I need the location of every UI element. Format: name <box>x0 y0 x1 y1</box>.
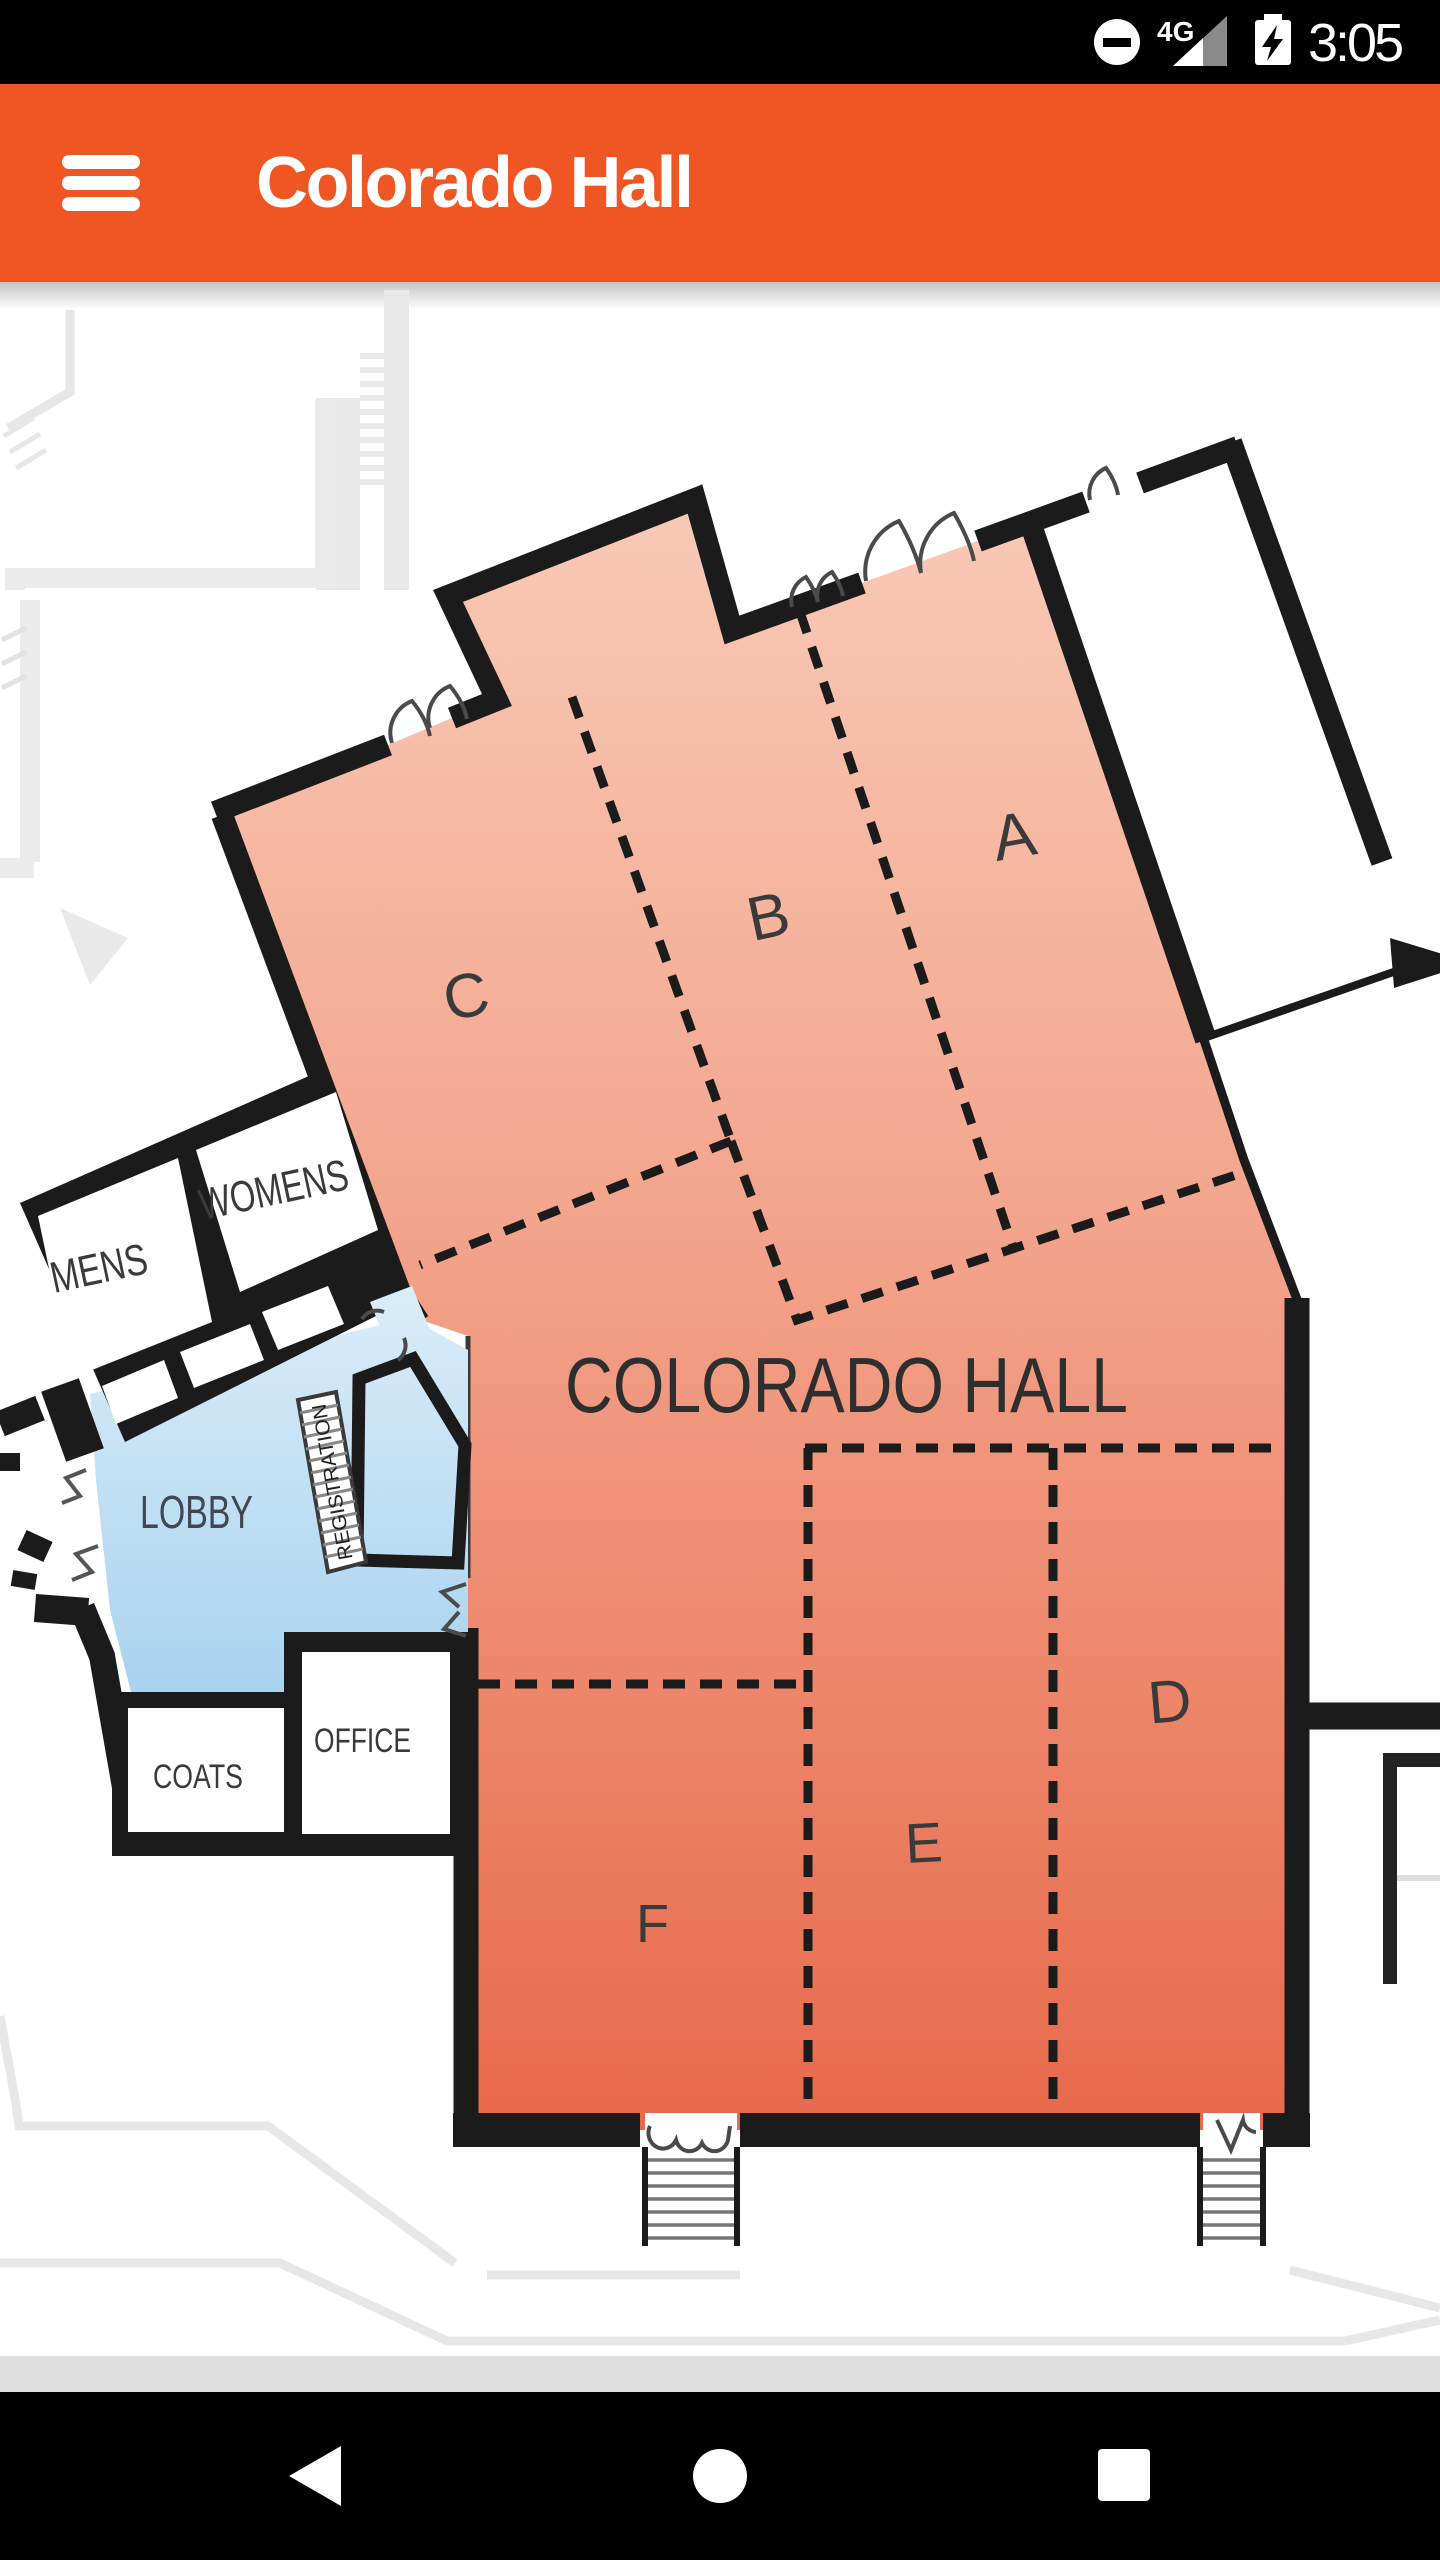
svg-text:COLORADO HALL: COLORADO HALL <box>565 1341 1128 1429</box>
svg-text:LOBBY: LOBBY <box>140 1486 253 1538</box>
svg-text:OFFICE: OFFICE <box>314 1722 411 1760</box>
svg-text:4G: 4G <box>1157 16 1194 47</box>
svg-text:D: D <box>1145 1666 1194 1737</box>
svg-text:E: E <box>903 1810 944 1875</box>
svg-text:3:05: 3:05 <box>1308 13 1402 73</box>
svg-text:COATS: COATS <box>153 1758 243 1796</box>
svg-text:F: F <box>636 1894 669 1954</box>
